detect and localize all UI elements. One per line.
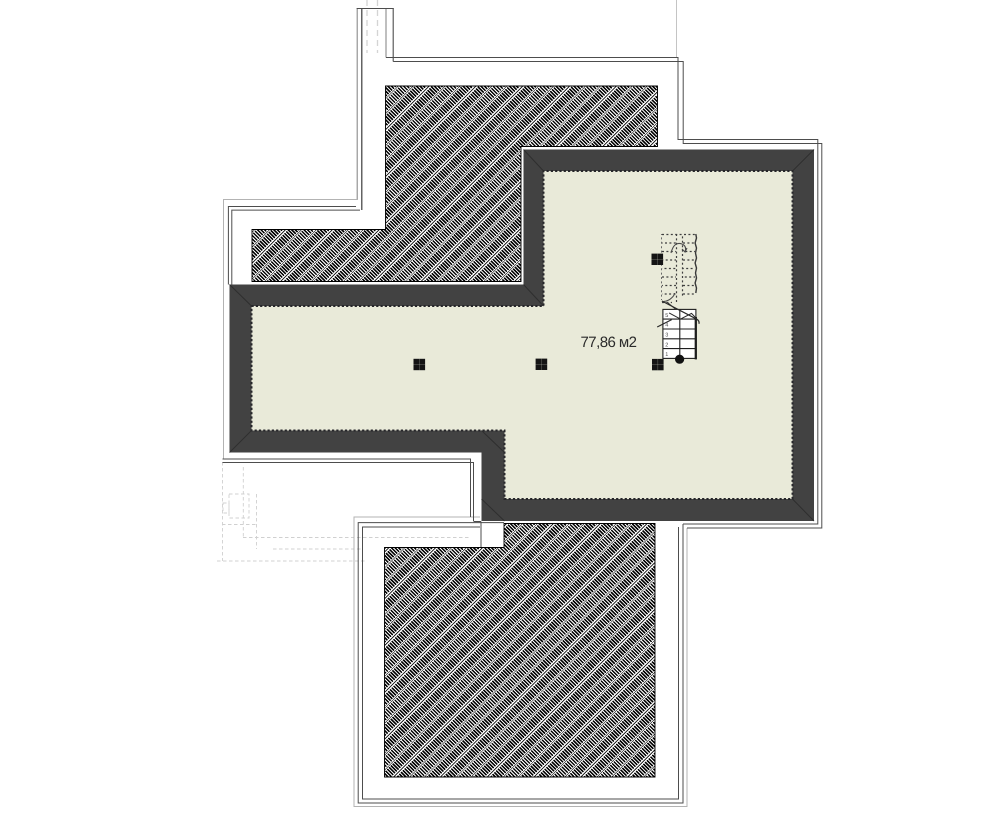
svg-text:1: 1 xyxy=(665,352,668,358)
svg-text:77,86 м2: 77,86 м2 xyxy=(581,334,638,351)
svg-text:2: 2 xyxy=(665,342,668,348)
svg-text:4: 4 xyxy=(665,323,668,329)
svg-text:3: 3 xyxy=(665,333,668,339)
svg-text:5: 5 xyxy=(665,313,668,319)
